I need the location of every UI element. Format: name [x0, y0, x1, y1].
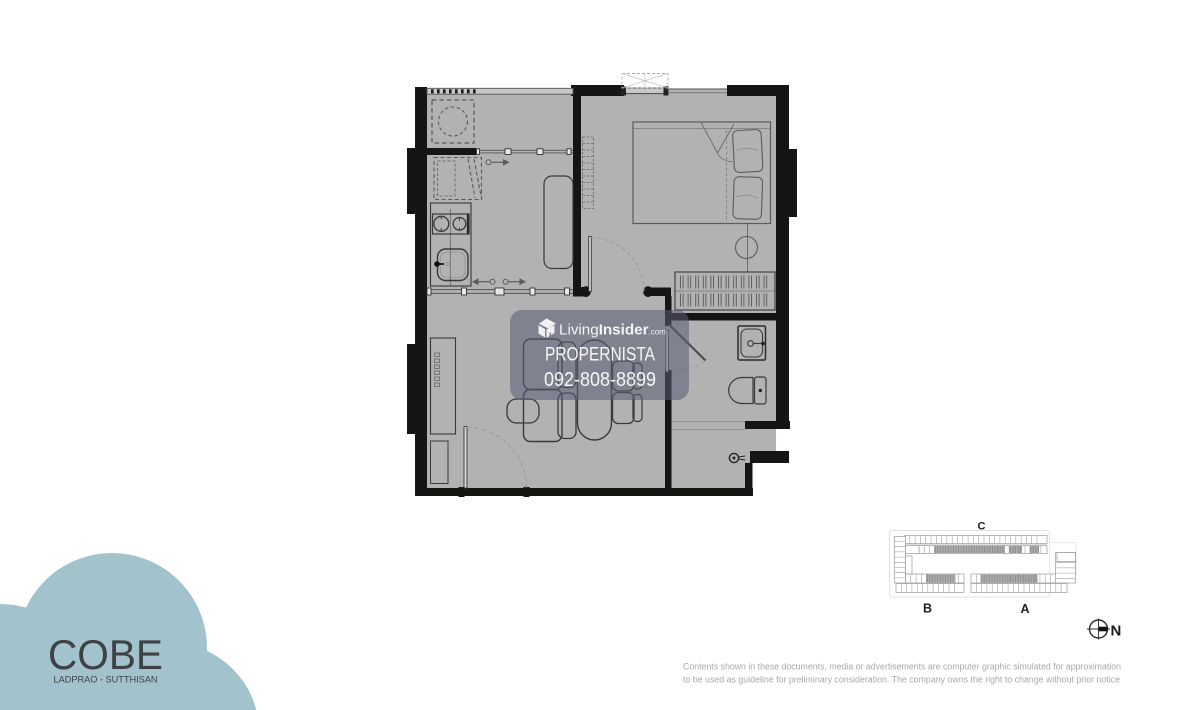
- svg-text:B: B: [923, 602, 932, 616]
- svg-text:LADPRAO - SUTTHISAN: LADPRAO - SUTTHISAN: [54, 675, 158, 686]
- svg-text:A: A: [1020, 602, 1029, 616]
- svg-text:092-808-8899: 092-808-8899: [544, 368, 656, 391]
- svg-text:COBE: COBE: [48, 631, 163, 678]
- svg-text:to be used as guideline for pr: to be used as guideline for preliminary …: [683, 675, 1120, 685]
- svg-text:PROPERNISTA: PROPERNISTA: [545, 344, 655, 366]
- svg-text:Contents shown in these docum: Contents shown in these documents, media…: [683, 662, 1121, 672]
- svg-text:N: N: [1111, 623, 1122, 640]
- svg-text:C: C: [978, 521, 986, 533]
